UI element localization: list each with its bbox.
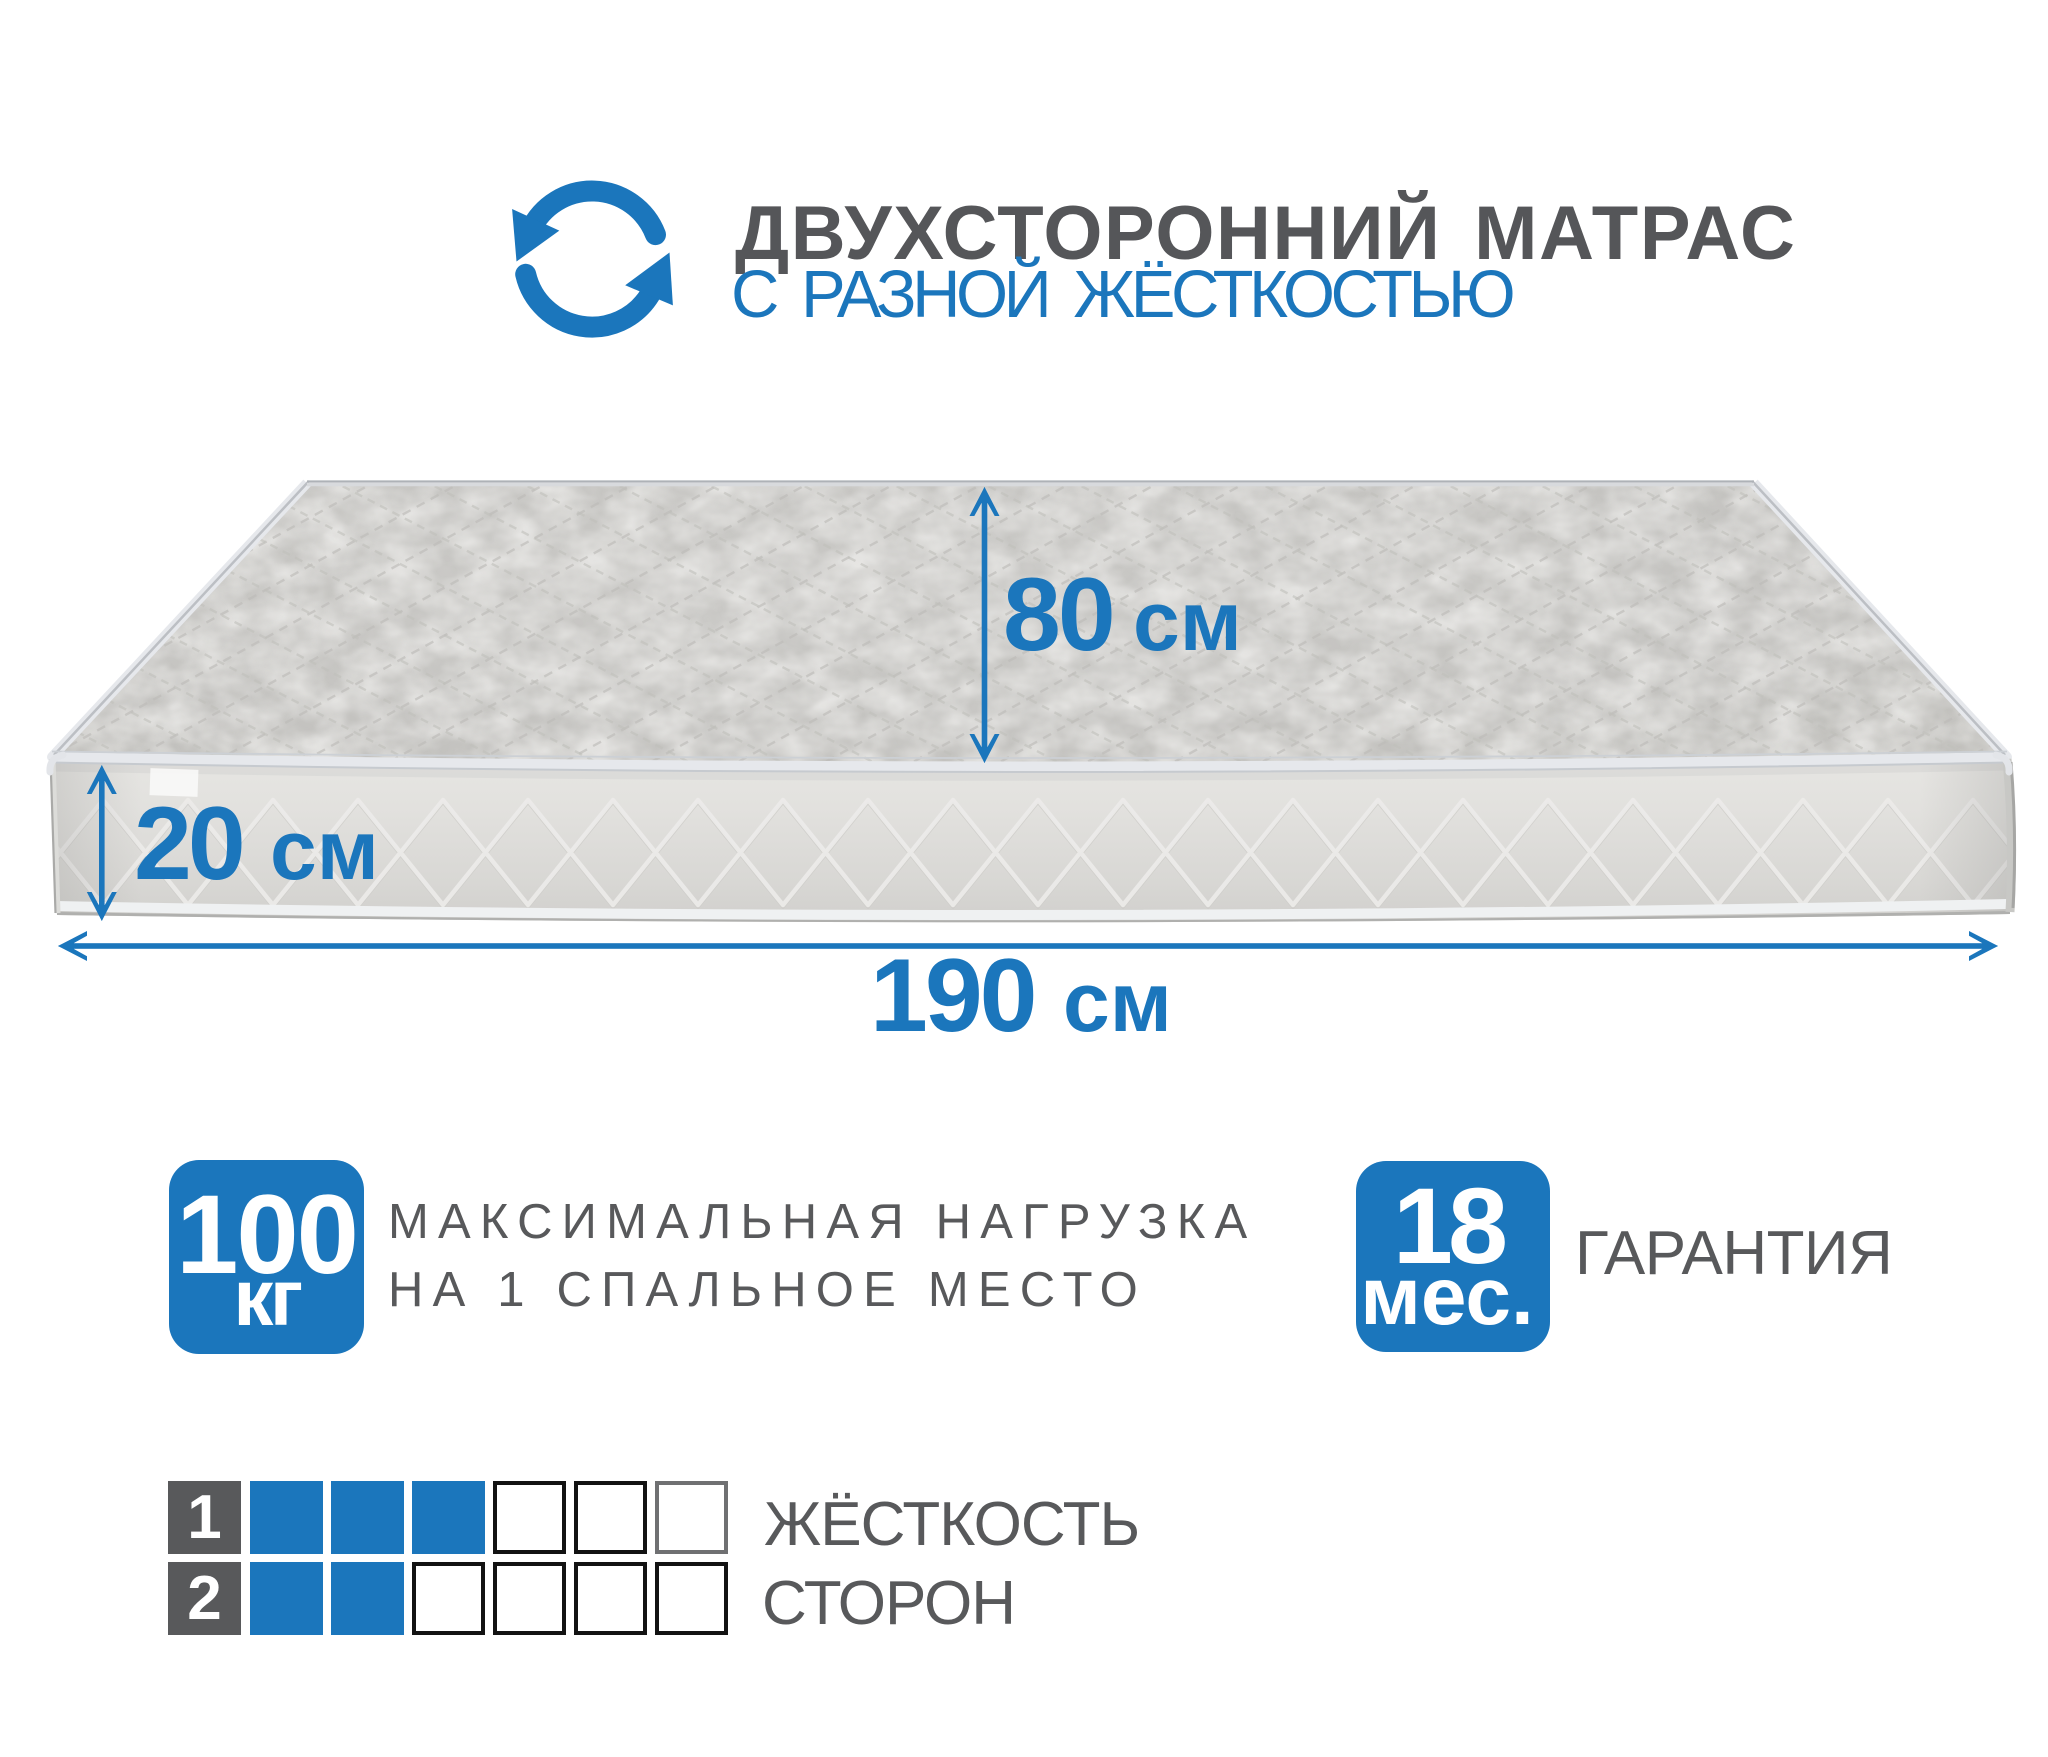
svg-text:190: 190 <box>870 938 1035 1054</box>
svg-text:см: см <box>270 803 379 897</box>
svg-text:80: 80 <box>1003 557 1113 673</box>
svg-text:см: см <box>1133 574 1242 668</box>
svg-text:см: см <box>1063 955 1172 1049</box>
svg-text:20: 20 <box>134 786 242 902</box>
